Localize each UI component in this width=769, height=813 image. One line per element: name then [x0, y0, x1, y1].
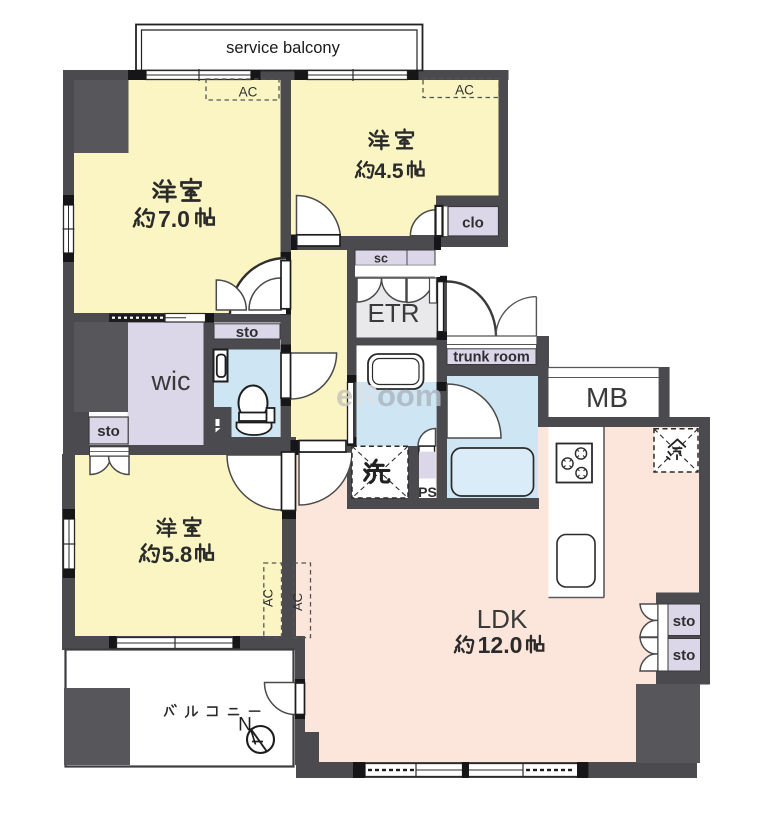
svg-text:sc: sc [374, 252, 388, 266]
svg-text:4.5: 4.5 [374, 160, 404, 183]
svg-text:MB: MB [586, 382, 628, 413]
svg-text:PS: PS [418, 484, 437, 500]
svg-text:AC: AC [290, 593, 305, 611]
svg-text:ETR: ETR [368, 298, 420, 328]
svg-text:clo: clo [462, 215, 484, 232]
svg-text:e: e [336, 378, 353, 413]
svg-text:AC: AC [261, 589, 276, 607]
svg-text:7.0: 7.0 [158, 206, 190, 232]
svg-text:AC: AC [455, 83, 474, 98]
svg-text:oom: oom [377, 378, 442, 413]
svg-text:12.0: 12.0 [478, 632, 523, 658]
svg-text:sto: sto [236, 324, 259, 341]
svg-text:trunk room: trunk room [453, 350, 530, 366]
svg-text:sto: sto [673, 647, 696, 664]
svg-text:R: R [356, 378, 378, 413]
svg-text:sto: sto [97, 423, 120, 440]
svg-text:AC: AC [239, 85, 258, 100]
svg-text:service balcony: service balcony [226, 39, 340, 57]
svg-text:N: N [238, 715, 252, 736]
svg-text:LDK: LDK [477, 604, 528, 634]
svg-text:5.8: 5.8 [162, 542, 193, 567]
svg-text:sto: sto [673, 613, 696, 630]
svg-text:wic: wic [151, 366, 191, 396]
